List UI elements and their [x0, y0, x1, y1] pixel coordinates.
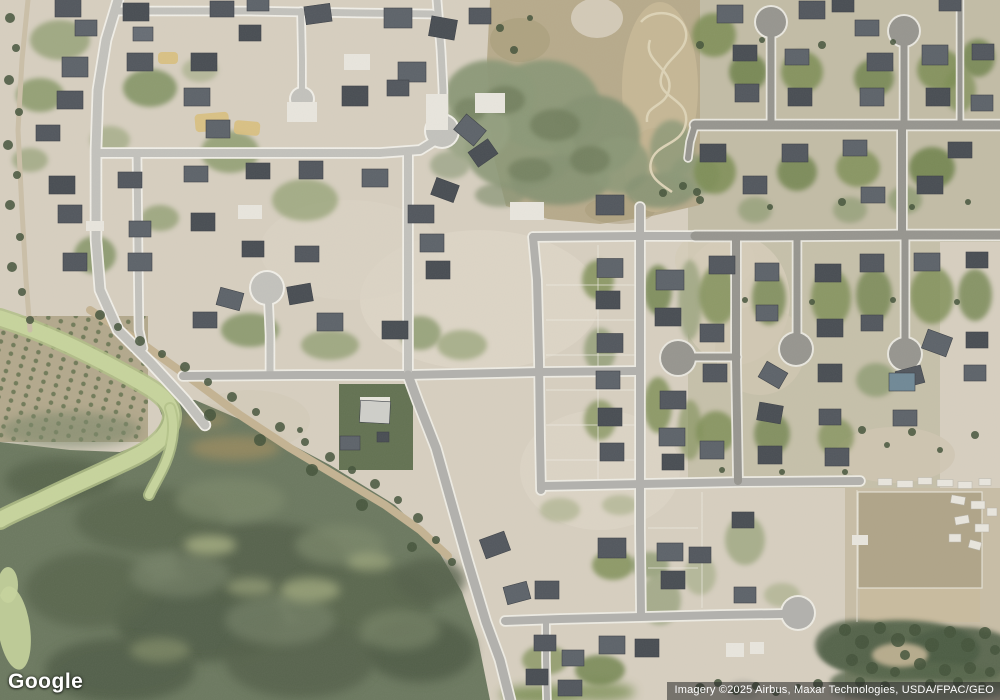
- map-viewport[interactable]: Google Imagery ©2025 Airbus, Maxar Techn…: [0, 0, 1000, 700]
- map-render-root: [0, 0, 1000, 700]
- map-svg[interactable]: [0, 0, 1000, 700]
- imagery-attribution: Imagery ©2025 Airbus, Maxar Technologies…: [667, 682, 1000, 700]
- noise-overlay: [0, 0, 1000, 700]
- google-logo[interactable]: Google: [8, 670, 83, 694]
